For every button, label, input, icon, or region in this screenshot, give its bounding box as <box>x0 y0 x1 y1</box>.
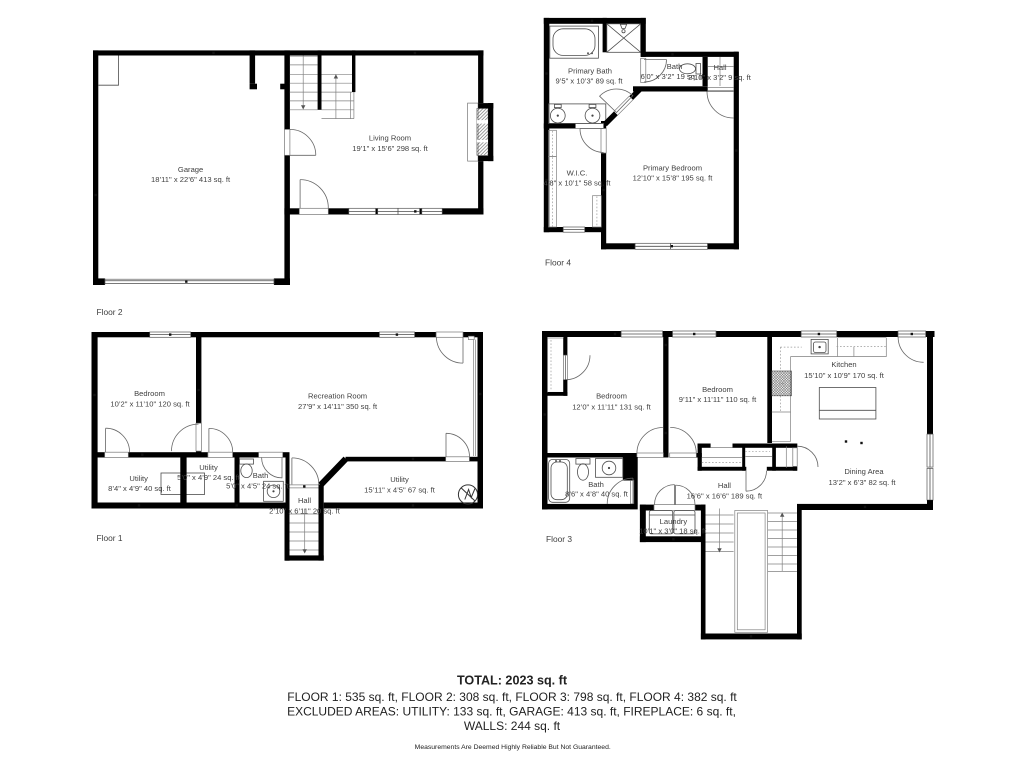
svg-text:Floor 3: Floor 3 <box>546 534 572 544</box>
svg-text:Measurements Are Deemed Highly: Measurements Are Deemed Highly Reliable … <box>415 744 611 751</box>
svg-text:Hall: Hall <box>718 481 731 490</box>
svg-text:TOTAL: 2023 sq. ft: TOTAL: 2023 sq. ft <box>457 674 568 688</box>
svg-text:Dining Area: Dining Area <box>844 467 884 476</box>
svg-text:Living Room: Living Room <box>369 134 411 143</box>
svg-text:9’11" x 11’11" 110 sq. ft: 9’11" x 11’11" 110 sq. ft <box>679 395 757 404</box>
svg-text:15’11" x 4’5" 67 sq. ft: 15’11" x 4’5" 67 sq. ft <box>364 486 436 495</box>
svg-text:9’5" x 10’3" 89 sq. ft: 9’5" x 10’3" 89 sq. ft <box>555 77 623 86</box>
svg-text:Bedroom: Bedroom <box>702 385 733 394</box>
svg-text:19’1" x 15’6" 298 sq. ft: 19’1" x 15’6" 298 sq. ft <box>352 144 428 153</box>
svg-text:8’4" x 4’9" 40 sq. ft: 8’4" x 4’9" 40 sq. ft <box>108 484 172 493</box>
svg-text:10’2" x 11’10" 120 sq. ft: 10’2" x 11’10" 120 sq. ft <box>110 400 190 409</box>
svg-text:Primary Bedroom: Primary Bedroom <box>643 164 702 173</box>
svg-text:W.I.C.: W.I.C. <box>567 168 588 177</box>
svg-text:Bedroom: Bedroom <box>134 389 165 398</box>
svg-text:Primary Bath: Primary Bath <box>568 67 612 76</box>
svg-text:EXCLUDED AREAS: UTILITY: 133 s: EXCLUDED AREAS: UTILITY: 133 sq. ft, GAR… <box>287 704 736 718</box>
svg-text:Bath: Bath <box>588 480 604 489</box>
svg-text:12’10" x 15’8" 195 sq. ft: 12’10" x 15’8" 195 sq. ft <box>633 174 714 183</box>
svg-text:Laundry: Laundry <box>660 517 688 526</box>
svg-text:Hall: Hall <box>713 63 726 72</box>
svg-text:Utility: Utility <box>199 463 218 472</box>
svg-text:Bedroom: Bedroom <box>596 392 627 401</box>
svg-text:Bath: Bath <box>253 471 269 480</box>
svg-text:13’2" x 6’3" 82 sq. ft: 13’2" x 6’3" 82 sq. ft <box>828 478 896 487</box>
svg-text:Floor 1: Floor 1 <box>97 533 123 543</box>
svg-text:15’10" x 10’9" 170 sq. ft: 15’10" x 10’9" 170 sq. ft <box>804 371 885 380</box>
svg-text:18’11" x 22’6" 413 sq. ft: 18’11" x 22’6" 413 sq. ft <box>151 175 231 184</box>
svg-text:10’1" x 3’0" 18 sq. ft: 10’1" x 3’0" 18 sq. ft <box>639 526 707 535</box>
svg-text:2’10" x 3’2" 9 sq. ft: 2’10" x 3’2" 9 sq. ft <box>688 73 752 82</box>
svg-text:5’0" x 4’5" 24 sq. ft: 5’0" x 4’5" 24 sq. ft <box>226 482 290 491</box>
svg-text:Floor 2: Floor 2 <box>97 307 123 317</box>
svg-text:FLOOR 1: 535 sq. ft, FLOOR 2:: FLOOR 1: 535 sq. ft, FLOOR 2: 308 sq. ft… <box>287 690 737 704</box>
svg-text:Kitchen: Kitchen <box>831 360 856 369</box>
svg-text:Hall: Hall <box>298 496 311 505</box>
svg-text:27’9" x 14’11" 350 sq. ft: 27’9" x 14’11" 350 sq. ft <box>298 402 378 411</box>
svg-text:Garage: Garage <box>178 165 203 174</box>
svg-text:Recreation Room: Recreation Room <box>308 392 367 401</box>
svg-text:WALLS: 244 sq. ft: WALLS: 244 sq. ft <box>464 719 561 733</box>
svg-text:16’6" x 16’6" 189 sq. ft: 16’6" x 16’6" 189 sq. ft <box>687 492 763 501</box>
svg-text:Utility: Utility <box>390 475 409 484</box>
svg-text:Floor 4: Floor 4 <box>545 257 571 267</box>
svg-text:4’8" x 10’1" 58 sq. ft: 4’8" x 10’1" 58 sq. ft <box>543 178 611 187</box>
svg-text:8’6" x 4’8" 40 sq. ft: 8’6" x 4’8" 40 sq. ft <box>565 490 629 499</box>
svg-text:12’0" x 11’11" 131 sq. ft: 12’0" x 11’11" 131 sq. ft <box>572 403 651 412</box>
svg-text:Bath: Bath <box>667 62 683 71</box>
svg-text:Utility: Utility <box>129 474 148 483</box>
svg-text:2’10" x 6’11" 20 sq. ft: 2’10" x 6’11" 20 sq. ft <box>269 507 341 516</box>
